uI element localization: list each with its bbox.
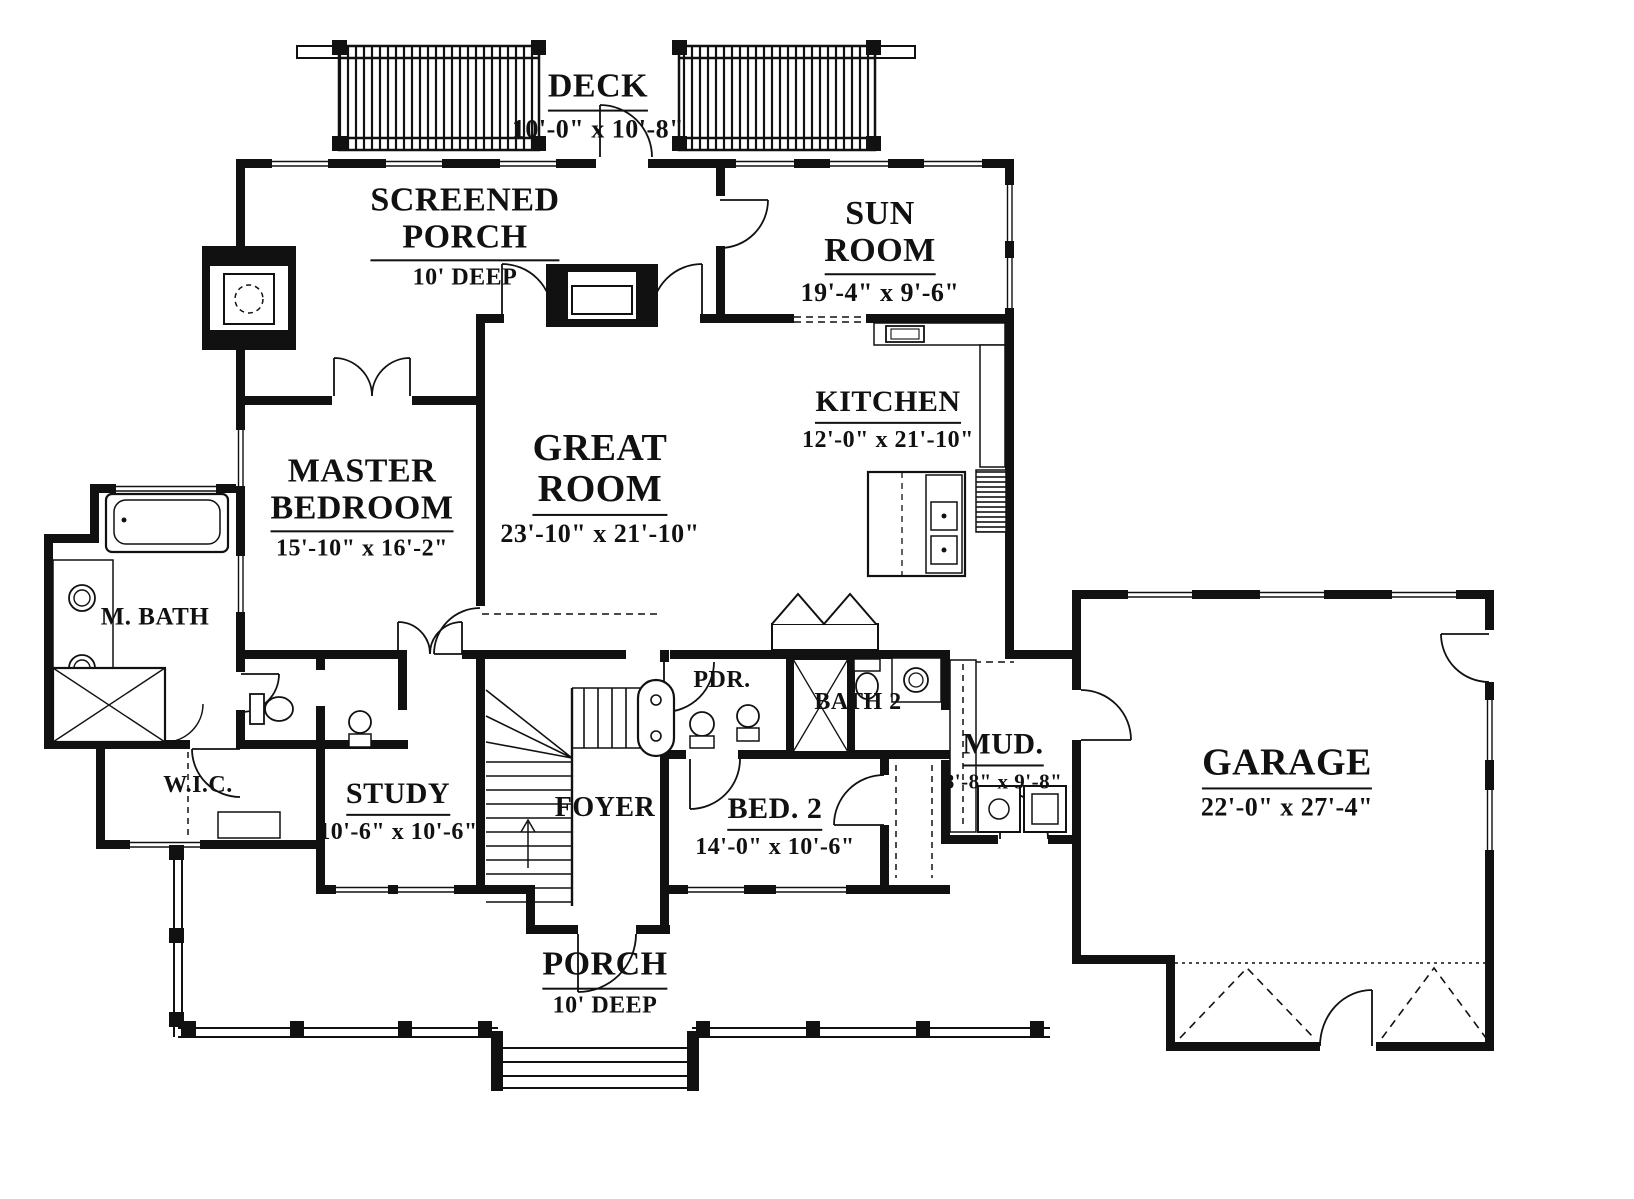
room-dims: 19'-4" x 9'-6" xyxy=(801,280,960,308)
front-steps xyxy=(492,1032,698,1090)
room-name: PDR. xyxy=(693,668,750,694)
room-label-m-bath: M. BATH xyxy=(101,604,210,631)
room-label-foyer: FOYER xyxy=(555,793,656,823)
room-label-bed2: BED. 2 14'-0" x 10'-6" xyxy=(695,793,854,861)
room-label-pdr: PDR. xyxy=(693,668,750,694)
room-label-master-bedroom: MASTER BEDROOM 15'-10" x 16'-2" xyxy=(271,453,454,562)
room-dims: 10'-0" x 10'-8" xyxy=(512,115,684,143)
built-in-bench xyxy=(772,594,878,650)
room-name: MASTER BEDROOM xyxy=(271,453,454,532)
room-dims: 10' DEEP xyxy=(413,266,518,292)
room-dims: 15'-10" x 16'-2" xyxy=(276,537,448,563)
floor-plan-drawing xyxy=(0,0,1634,1199)
kitchen-sink-basin xyxy=(891,329,919,339)
room-name: FOYER xyxy=(555,793,656,823)
fireplace-great-room xyxy=(550,268,654,323)
room-label-screened-porch: SCREENED PORCH 10' DEEP xyxy=(370,182,559,291)
room-label-study: STUDY 10'-6" x 10'-6" xyxy=(318,778,477,846)
room-name: STUDY xyxy=(346,778,450,816)
room-name: KITCHEN xyxy=(815,386,960,424)
kitchen-island xyxy=(868,472,965,576)
garage-man-door xyxy=(1320,990,1372,1046)
garage-door-swing-2 xyxy=(1382,968,1486,1038)
room-dims: 10' DEEP xyxy=(553,993,658,1019)
study-double-doors xyxy=(398,622,462,654)
room-dims: 8'-8" x 9'-8" xyxy=(944,771,1062,794)
room-label-kitchen: KITCHEN 12'-0" x 21'-10" xyxy=(802,386,974,454)
room-dims: 10'-6" x 10'-6" xyxy=(318,820,477,846)
room-name: M. BATH xyxy=(101,604,210,631)
refrigerator xyxy=(976,470,1006,532)
hall-sink xyxy=(349,711,371,747)
room-label-sun-room: SUN ROOM 19'-4" x 9'-6" xyxy=(801,196,960,308)
room-label-wic: W.I.C. xyxy=(163,773,232,799)
garage-side-door xyxy=(1441,634,1489,682)
mud-garage-door xyxy=(1081,690,1131,740)
room-label-great-room: GREAT ROOM 23'-10" x 21'-10" xyxy=(500,428,699,548)
room-name: MUD. xyxy=(962,728,1043,766)
sunroom-door xyxy=(720,200,768,248)
garage-doors xyxy=(1175,963,1486,1038)
greatroom-french-door-right xyxy=(652,264,702,314)
room-label-deck: DECK 10'-0" x 10'-8" xyxy=(512,69,684,144)
fireplace-screened-porch xyxy=(206,250,292,346)
room-name: SCREENED PORCH xyxy=(370,182,559,261)
room-dims: 12'-0" x 21'-10" xyxy=(802,428,974,454)
room-name: GARAGE xyxy=(1202,742,1372,789)
room-name: GREAT ROOM xyxy=(533,428,668,516)
pdr-sink xyxy=(737,705,759,741)
room-label-porch: PORCH 10' DEEP xyxy=(542,947,667,1020)
room-name: W.I.C. xyxy=(163,773,232,799)
room-dims: 14'-0" x 10'-6" xyxy=(695,835,854,861)
counter-side xyxy=(980,345,1005,467)
shower xyxy=(53,668,203,742)
bathtub xyxy=(106,494,228,552)
toilet xyxy=(250,694,293,724)
room-name: BATH 2 xyxy=(814,690,901,716)
room-name: DECK xyxy=(548,69,648,112)
room-label-garage: GARAGE 22'-0" x 27'-4" xyxy=(1201,742,1373,821)
floor-plan: DECK 10'-0" x 10'-8" SCREENED PORCH 10' … xyxy=(0,0,1634,1199)
master-french-doors xyxy=(334,358,410,396)
room-label-mud: MUD. 8'-8" x 9'-8" xyxy=(944,728,1062,793)
room-dims: 22'-0" x 27'-4" xyxy=(1201,793,1373,821)
garage-door-swing-1 xyxy=(1180,968,1314,1038)
room-label-bath2: BATH 2 xyxy=(814,690,901,716)
pdr-toilet xyxy=(690,712,714,748)
room-name: PORCH xyxy=(542,947,667,990)
room-name: BED. 2 xyxy=(728,793,823,831)
room-dims: 23'-10" x 21'-10" xyxy=(500,520,699,548)
room-name: SUN ROOM xyxy=(824,196,936,275)
